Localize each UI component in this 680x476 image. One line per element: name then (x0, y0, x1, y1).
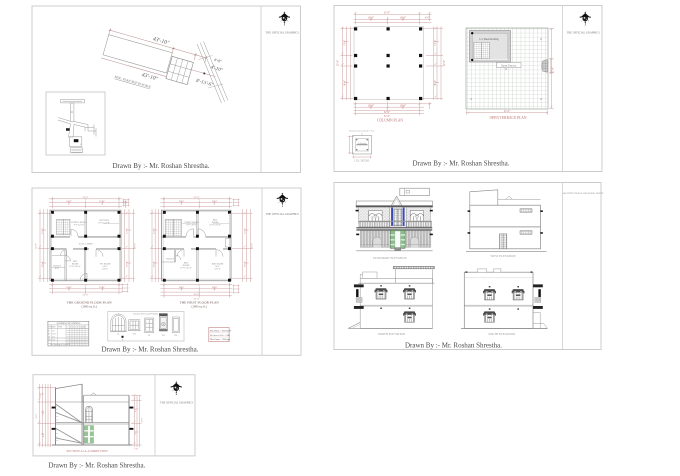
svg-text:16'-4": 16'-4" (243, 261, 246, 267)
svg-text:16'-0": 16'-0" (99, 286, 105, 289)
svg-text:Drawn By :- Mr. Roshan Shresth: Drawn By :- Mr. Roshan Shrestha. (112, 162, 209, 170)
svg-text:2.5'x7': 2.5'x7' (52, 334, 57, 336)
svg-text:Total Openings of Ground Flr: Total Openings of Ground Flr (50, 343, 71, 346)
svg-text:32'-0": 32'-0" (83, 196, 89, 199)
svg-text:NORTH ELEVATION: NORTH ELEVATION (378, 332, 406, 336)
svg-text:19'-0": 19'-0" (36, 413, 38, 418)
svg-text:COLUMN PLAN: COLUMN PLAN (377, 119, 403, 123)
svg-text:9'-6": 9'-6" (135, 408, 137, 412)
svg-text:Reinforcement Detail of Col.: Reinforcement Detail of Col. (349, 130, 375, 133)
svg-text:13'-8": 13'-8" (243, 228, 246, 234)
svg-text:9'-6": 9'-6" (43, 410, 45, 414)
svg-text:Max Plinth = 1093 SQFT: Max Plinth = 1093 SQFT (210, 330, 232, 332)
svg-text:THE OFFICIAL GRAPHICS: THE OFFICIAL GRAPHICS (266, 213, 300, 216)
svg-text:Drawn By :- Mr. Roshan Shresth: Drawn By :- Mr. Roshan Shrestha. (412, 160, 509, 168)
svg-text:9'-0"x10'-0": 9'-0"x10'-0" (186, 224, 197, 226)
svg-text:32'-0": 32'-0" (337, 60, 340, 66)
svg-text:PASS / LOBBY: PASS / LOBBY (79, 243, 94, 246)
svg-text:16'-4": 16'-4" (344, 80, 347, 86)
svg-text:13'-8": 13'-8" (126, 228, 129, 234)
svg-text:D1: D1 (48, 334, 50, 336)
svg-text:13'-8": 13'-8" (41, 228, 44, 234)
svg-text:9'-0"x13'-8": 9'-0"x13'-8" (74, 224, 85, 226)
svg-text:4'x5': 4'x5' (55, 268, 60, 270)
svg-text:4'-0": 4'-0" (425, 17, 430, 20)
svg-text:SIZE: SIZE (52, 327, 56, 329)
svg-text:12'-0"x16'-4": 12'-0"x16'-4" (69, 266, 81, 268)
svg-text:COL. DETAIL: COL. DETAIL (354, 160, 370, 163)
svg-text:Open Terrace: Open Terrace (501, 64, 517, 67)
svg-text:9'-6": 9'-6" (135, 430, 137, 434)
svg-text:x16'-4": x16'-4" (102, 269, 108, 271)
svg-text:10'-0"x13'-8": 10'-0"x13'-8" (98, 222, 110, 224)
svg-text:WEST ELEVATION: WEST ELEVATION (490, 254, 516, 258)
svg-text:16'-4": 16'-4" (434, 80, 437, 86)
svg-text:13'-8": 13'-8" (344, 40, 347, 46)
svg-text:(1093 sq. ft.): (1093 sq. ft.) (191, 304, 207, 308)
svg-text:32'-0": 32'-0" (384, 12, 390, 15)
svg-text:TOILET: TOILET (166, 259, 174, 261)
svg-text:32'-0": 32'-0" (194, 293, 200, 296)
svg-text:(1093 sq. ft.): (1093 sq. ft.) (81, 304, 97, 308)
svg-text:1'-6": 1'-6" (134, 449, 138, 451)
svg-text:16'-4": 16'-4" (41, 261, 44, 267)
svg-text:16'-0": 16'-0" (179, 286, 185, 289)
svg-text:32'-0": 32'-0" (133, 243, 136, 249)
svg-text:ARCHITECTURAL DRAWING SHEET: ARCHITECTURAL DRAWING SHEET (562, 192, 604, 195)
svg-text:32'-0": 32'-0" (35, 243, 38, 249)
svg-text:9'-6": 9'-6" (43, 433, 45, 437)
svg-text:THE OFFICIAL GRAPHICS: THE OFFICIAL GRAPHICS (266, 31, 300, 34)
svg-text:4-16mm dia: 4-16mm dia (358, 143, 367, 145)
svg-text:32'-0": 32'-0" (384, 111, 390, 114)
svg-text:C.I. Sheet Roofing: C.I. Sheet Roofing (479, 38, 499, 41)
svg-text:Drawn By :- Mr. Roshan Shresth: Drawn By :- Mr. Roshan Shrestha. (405, 342, 502, 350)
svg-text:SECTION At A-A DIRECTION: SECTION At A-A DIRECTION (66, 449, 108, 453)
svg-text:12'-0"x13'-8": 12'-0"x13'-8" (209, 225, 221, 227)
svg-text:32'-0": 32'-0" (251, 243, 254, 249)
svg-text:4'-0": 4'-0" (40, 392, 42, 396)
svg-text:16'-4": 16'-4" (152, 261, 155, 267)
svg-text:16'-0": 16'-0" (179, 200, 185, 203)
svg-text:16'-0": 16'-0" (212, 200, 218, 203)
svg-text:16'-0": 16'-0" (66, 200, 72, 203)
svg-text:19'-0": 19'-0" (142, 417, 144, 422)
svg-text:SOUTH ELEVATION: SOUTH ELEVATION (488, 332, 516, 336)
svg-text:13'-8": 13'-8" (434, 40, 437, 46)
svg-text:32'-0": 32'-0" (504, 110, 510, 113)
svg-text:16'-0": 16'-0" (66, 286, 72, 289)
svg-text:13'-8": 13'-8" (152, 228, 155, 234)
svg-text:D: D (118, 333, 120, 336)
svg-text:Tot Area of 2 flr = 2186: Tot Area of 2 flr = 2186 (210, 334, 230, 337)
svg-text:32'-0": 32'-0" (552, 67, 555, 73)
svg-text:Max Carpet = 1906 sqft: Max Carpet = 1906 sqft (210, 338, 230, 341)
svg-text:32'-0": 32'-0" (83, 294, 89, 297)
svg-text:THE OFFICIAL GRAPHICS: THE OFFICIAL GRAPHICS (567, 32, 601, 35)
svg-text:Drawn By :- Mr. Roshan Shresth: Drawn By :- Mr. Roshan Shrestha. (101, 346, 198, 354)
svg-text:16'-0": 16'-0" (368, 17, 374, 20)
svg-text:x16'-4": x16'-4" (214, 269, 220, 271)
svg-text:OPEN TERRACE PLAN: OPEN TERRACE PLAN (490, 116, 527, 120)
svg-text:12'-0"x16'-4": 12'-0"x16'-4" (180, 268, 192, 270)
svg-text:16'-0": 16'-0" (368, 105, 374, 108)
svg-text:DOWNPART ELEVATION: DOWNPART ELEVATION (373, 256, 407, 260)
svg-text:TYPE: TYPE (58, 327, 62, 329)
svg-text:32'-0": 32'-0" (443, 60, 446, 66)
svg-text:16'-0": 16'-0" (99, 200, 105, 203)
svg-text:16'-0": 16'-0" (400, 105, 406, 108)
svg-text:Drawn By :- Mr. Roshan Shresth: Drawn By :- Mr. Roshan Shrestha. (48, 461, 145, 469)
svg-text:THE OFFICIAL GRAPHICS: THE OFFICIAL GRAPHICS (160, 401, 194, 404)
svg-text:16'-0": 16'-0" (212, 286, 218, 289)
svg-text:W1: W1 (48, 339, 51, 341)
svg-text:R: R (71, 111, 73, 114)
svg-text:16'-0": 16'-0" (400, 17, 406, 20)
svg-text:32'-0": 32'-0" (194, 196, 200, 199)
svg-text:16'-4": 16'-4" (126, 261, 129, 267)
